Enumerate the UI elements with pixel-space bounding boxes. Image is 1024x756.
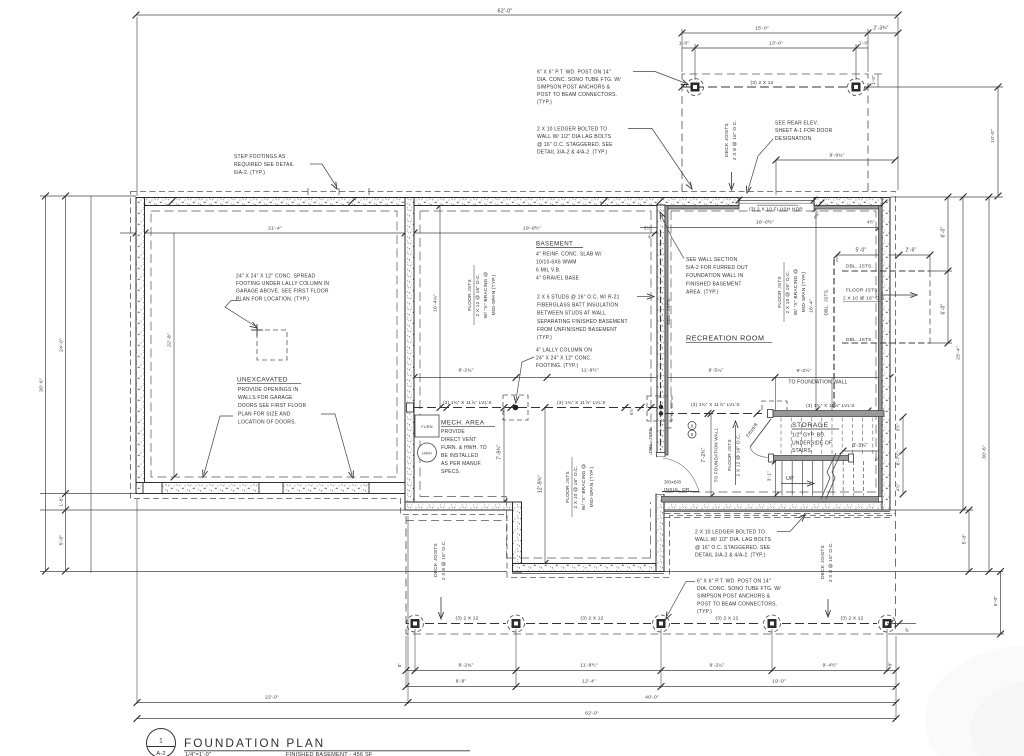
svg-text:DBL. JSTS.: DBL. JSTS. (824, 288, 830, 315)
svg-text:16'-4": 16'-4" (809, 299, 815, 313)
svg-text:6½": 6½" (629, 407, 634, 415)
svg-text:2 X 10 @ 16" O.C.: 2 X 10 @ 16" O.C. (785, 270, 791, 313)
svg-text:25'-4": 25'-4" (956, 346, 962, 360)
svg-text:8'-2¾": 8'-2¾" (458, 368, 473, 374)
svg-text:DETAIL 3/A-2 & 4/A-2. (TYP.): DETAIL 3/A-2 & 4/A-2. (TYP.) (537, 150, 608, 156)
svg-text:7'-9¾": 7'-9¾" (497, 444, 503, 459)
svg-text:12'-9¾": 12'-9¾" (538, 475, 544, 493)
svg-text:8": 8" (397, 663, 402, 668)
svg-text:(3) 2 X 12: (3) 2 X 12 (750, 80, 773, 86)
svg-text:5'-0": 5'-0" (962, 534, 968, 545)
svg-text:6'-0": 6'-0" (941, 304, 947, 315)
svg-text:12'-4": 12'-4" (582, 679, 596, 685)
svg-text:(TYP.): (TYP.) (697, 609, 712, 615)
svg-text:11'-9½": 11'-9½" (581, 367, 599, 374)
svg-text:SEE REAR ELEV.: SEE REAR ELEV. (775, 121, 818, 127)
svg-text:22'-8": 22'-8" (167, 333, 173, 347)
svg-text:2 X 10 @ 16" O.C.: 2 X 10 @ 16" O.C. (573, 465, 579, 508)
svg-text:15'-0": 15'-0" (755, 26, 769, 32)
svg-text:22'-0": 22'-0" (265, 695, 279, 701)
svg-text:DECK JOISTS: DECK JOISTS (433, 543, 439, 577)
svg-text:DESIGNATION.: DESIGNATION. (775, 136, 813, 142)
svg-text:3'-3¾": 3'-3¾" (852, 443, 867, 449)
svg-text:DBL. JSTS.: DBL. JSTS. (648, 426, 654, 453)
svg-text:FOOTING. (TYP.): FOOTING. (TYP.) (536, 363, 578, 369)
svg-text:BASEMENT: BASEMENT (536, 241, 573, 248)
svg-text:HWH: HWH (422, 452, 432, 456)
svg-text:W/ "X" BRACING @: W/ "X" BRACING @ (483, 272, 489, 318)
svg-text:9'-2¼": 9'-2¼" (709, 663, 724, 669)
svg-text:(3) 2 X 12: (3) 2 X 12 (580, 616, 603, 622)
svg-text:STORAGE: STORAGE (792, 422, 829, 429)
svg-text:FLOOR JSTS: FLOOR JSTS (467, 279, 473, 311)
svg-text:TO FOUNDATION WALL: TO FOUNDATION WALL (714, 427, 719, 482)
svg-text:A-2: A-2 (156, 751, 166, 756)
svg-text:4" LALLY COLUMN ON: 4" LALLY COLUMN ON (536, 348, 592, 354)
svg-text:AS PER MANUF.: AS PER MANUF. (441, 461, 482, 467)
svg-text:62'-0": 62'-0" (585, 711, 599, 717)
svg-text:19'-0": 19'-0" (772, 679, 786, 685)
svg-text:DIA. CONC. SONO TUBE FTG. W/: DIA. CONC. SONO TUBE FTG. W/ (697, 586, 781, 592)
svg-text:30'-6": 30'-6" (39, 378, 45, 392)
svg-text:4" REINF. CONC. SLAB W/: 4" REINF. CONC. SLAB W/ (536, 252, 602, 258)
svg-text:5'-0": 5'-0" (59, 535, 65, 546)
svg-text:W/ "X" BRACING @: W/ "X" BRACING @ (581, 464, 587, 510)
svg-text:13'-0": 13'-0" (769, 41, 783, 47)
svg-text:8": 8" (888, 662, 893, 667)
svg-text:9'-9¾": 9'-9¾" (829, 153, 844, 159)
svg-text:5'-0": 5'-0" (993, 596, 999, 607)
svg-text:19'-9½": 19'-9½" (523, 225, 541, 232)
svg-text:PLAN FOR LOCATION. (TYP.): PLAN FOR LOCATION. (TYP.) (236, 296, 309, 302)
svg-text:6'-7½": 6'-7½" (895, 451, 901, 465)
svg-text:2'-6": 2'-6" (906, 248, 917, 254)
svg-text:9'-5¼": 9'-5¼" (708, 368, 723, 374)
svg-text:DIA. CONC. SONO TUBE FTG. W/: DIA. CONC. SONO TUBE FTG. W/ (537, 77, 621, 83)
svg-text:8": 8" (905, 627, 910, 632)
svg-text:9'-2½": 9'-2½" (796, 367, 811, 374)
svg-text:UNEXCAVATED: UNEXCAVATED (237, 377, 288, 384)
svg-text:SHEET A-1 FOR DOOR: SHEET A-1 FOR DOOR (775, 128, 833, 134)
svg-text:UNDERSIDE OF: UNDERSIDE OF (792, 440, 832, 446)
svg-text:1'-0": 1'-0" (871, 75, 876, 85)
svg-text:MID-SPAN (TYP.): MID-SPAN (TYP.) (491, 274, 497, 315)
svg-text:WALLS FOR GARAGE: WALLS FOR GARAGE (238, 395, 293, 401)
svg-text:BETWEEN STUDS AT WALL: BETWEEN STUDS AT WALL (537, 311, 606, 317)
svg-text:@ 16" O.C. STAGGERED. SEE: @ 16" O.C. STAGGERED. SEE (537, 142, 613, 148)
svg-text:PLAN FOR SIZE AND: PLAN FOR SIZE AND (238, 411, 291, 417)
svg-text:3/0x6/8: 3/0x6/8 (664, 480, 681, 486)
svg-text:24" X 24" X 12" CONC.: 24" X 24" X 12" CONC. (536, 355, 592, 361)
svg-text:18'-0½": 18'-0½" (756, 219, 774, 226)
svg-text:DBL. JSTS.: DBL. JSTS. (666, 297, 672, 324)
svg-text:FIBERGLASS BATT INSULATION: FIBERGLASS BATT INSULATION (537, 303, 619, 309)
svg-text:1: 1 (159, 738, 163, 745)
svg-text:FOUNDATION WALL IN: FOUNDATION WALL IN (686, 273, 743, 279)
svg-text:16'-4¾": 16'-4¾" (433, 294, 439, 312)
svg-text:1'-6": 1'-6" (59, 496, 64, 506)
svg-text:FLOOR JSTS: FLOOR JSTS (846, 288, 878, 294)
svg-text:SEPARATING FINISHED BASEMENT: SEPARATING FINISHED BASEMENT (537, 319, 628, 325)
svg-text:PROVIDE: PROVIDE (441, 429, 465, 435)
svg-text:UP: UP (786, 476, 794, 482)
svg-text:(3) 1¾" X 11⅞" LVL'S: (3) 1¾" X 11⅞" LVL'S (806, 403, 855, 408)
svg-text:FURN. & HWH. TO: FURN. & HWH. TO (441, 445, 487, 451)
svg-text:(3) 2 X 12: (3) 2 X 12 (715, 616, 738, 622)
svg-text:TO FOUNDATION WALL: TO FOUNDATION WALL (788, 380, 847, 386)
svg-text:2 X 8 @ 16" O.C.: 2 X 8 @ 16" O.C. (441, 540, 447, 580)
svg-text:FLOOR JSTS: FLOOR JSTS (777, 276, 783, 308)
svg-text:SIMPSON POST ANCHORS &: SIMPSON POST ANCHORS & (697, 594, 771, 600)
svg-text:2 X 8 @ 16" O.C.: 2 X 8 @ 16" O.C. (732, 120, 738, 160)
svg-text:21'-4": 21'-4" (268, 226, 282, 232)
svg-text:4½": 4½" (867, 220, 875, 225)
svg-text:2 X 6 STUDS @ 16" O.C. W/ R-21: 2 X 6 STUDS @ 16" O.C. W/ R-21 (537, 295, 620, 301)
svg-text:40'-0": 40'-0" (645, 695, 659, 701)
svg-text:30'-6": 30'-6" (982, 445, 988, 459)
svg-text:2 X 12 @ 16" O.C.: 2 X 12 @ 16" O.C. (736, 433, 742, 476)
svg-text:2'-3¾": 2'-3¾" (873, 26, 888, 32)
svg-text:6" X 6" P.T. WD. POST ON 14": 6" X 6" P.T. WD. POST ON 14" (537, 70, 611, 76)
svg-text:10/10-6X6 WWM: 10/10-6X6 WWM (536, 260, 577, 266)
svg-text:11'-8½": 11'-8½" (580, 662, 598, 669)
svg-text:3'-1": 3'-1" (767, 471, 772, 481)
svg-text:DBL. JSTS.: DBL. JSTS. (846, 337, 873, 343)
svg-text:@ 16" O.C. STAGGERED. SEE: @ 16" O.C. STAGGERED. SEE (695, 545, 771, 551)
svg-text:BE INSTALLED: BE INSTALLED (441, 453, 479, 459)
svg-text:24'-0": 24'-0" (59, 338, 65, 352)
svg-text:62'-0": 62'-0" (498, 9, 513, 15)
svg-text:6" X 6" P.T. WD. POST ON 14": 6" X 6" P.T. WD. POST ON 14" (697, 579, 771, 585)
svg-text:DIRECT VENT: DIRECT VENT (441, 437, 476, 443)
svg-text:1'-0": 1'-0" (679, 41, 689, 46)
svg-text:RECREATION ROOM: RECREATION ROOM (686, 334, 764, 343)
svg-text:MID-SPAN (TYP.): MID-SPAN (TYP.) (801, 271, 807, 312)
svg-text:DETAIL 3/A-2 & 4/A-2. (TYP.): DETAIL 3/A-2 & 4/A-2. (TYP.) (695, 553, 766, 559)
svg-text:24" X 24" X 12" CONC. SPREAD: 24" X 24" X 12" CONC. SPREAD (236, 274, 315, 280)
svg-text:GARAGE ABOVE. SEE FIRST FLOOR: GARAGE ABOVE. SEE FIRST FLOOR (236, 289, 329, 295)
svg-text:4½": 4½" (896, 483, 901, 491)
svg-text:REQUIRED SEE DETAIL: REQUIRED SEE DETAIL (234, 162, 294, 168)
svg-text:(TYP.): (TYP.) (537, 100, 552, 106)
svg-text:FOUNDATION PLAN: FOUNDATION PLAN (184, 736, 325, 750)
svg-text:AREA. (TYP.): AREA. (TYP.) (686, 289, 719, 295)
svg-text:FROM UNFINISHED BASEMENT: FROM UNFINISHED BASEMENT (537, 327, 617, 333)
svg-text:9'-4½": 9'-4½" (822, 662, 837, 669)
svg-text:PROVIDE OPENINGS IN: PROVIDE OPENINGS IN (238, 387, 299, 393)
svg-text:FURN: FURN (421, 425, 432, 429)
svg-text:2 X 10 LEDGER BOLTED TO: 2 X 10 LEDGER BOLTED TO (537, 127, 607, 133)
svg-text:DECK JOISTS: DECK JOISTS (820, 545, 826, 579)
svg-text:5'-0": 5'-0" (856, 248, 867, 254)
svg-text:(3) 1¾" X 11⅞" LVL'S: (3) 1¾" X 11⅞" LVL'S (443, 400, 492, 405)
svg-text:8'-2¾": 8'-2¾" (458, 663, 473, 669)
svg-text:5/A-2 FOR FURRED OUT: 5/A-2 FOR FURRED OUT (686, 265, 748, 271)
svg-text:FLOOR JSTS: FLOOR JSTS (727, 439, 733, 471)
svg-text:6/A-2. (TYP.): 6/A-2. (TYP.) (234, 170, 265, 176)
svg-text:STAIRS: STAIRS (792, 448, 811, 454)
svg-text:POST TO BEAM CONNECTORS.: POST TO BEAM CONNECTORS. (697, 601, 777, 607)
svg-text:2 X 8 @ 16" O.C.: 2 X 8 @ 16" O.C. (828, 542, 834, 582)
svg-text:MID-SPAN (TYP.): MID-SPAN (TYP.) (589, 466, 595, 507)
svg-text:(3) 2 X 12: (3) 2 X 12 (840, 616, 863, 622)
svg-text:(3) 1¾" X 11⅞" LVL'S: (3) 1¾" X 11⅞" LVL'S (691, 402, 740, 407)
svg-text:DOORS SEE FIRST FLOOR: DOORS SEE FIRST FLOOR (238, 403, 306, 409)
svg-text:(3) 2 X 10 FLUSH HDR: (3) 2 X 10 FLUSH HDR (749, 207, 803, 213)
svg-text:(TYP.): (TYP.) (537, 335, 552, 341)
svg-text:SEE WALL SECTION: SEE WALL SECTION (686, 257, 738, 263)
svg-text:1/4"=1'-0": 1/4"=1'-0" (185, 752, 211, 756)
svg-text:MECH. AREA: MECH. AREA (441, 420, 485, 427)
svg-text:FLOOR JSTS: FLOOR JSTS (565, 471, 571, 503)
svg-text:DBL. JSTS.: DBL. JSTS. (846, 264, 873, 270)
svg-text:6 MIL V.B.: 6 MIL V.B. (536, 268, 561, 274)
svg-text:FINISHED BASEMENT: FINISHED BASEMENT (686, 281, 742, 287)
svg-text:(3) 2 X 12: (3) 2 X 12 (455, 616, 478, 622)
svg-text:2 X 10 @ 16" O.C.: 2 X 10 @ 16" O.C. (843, 296, 886, 302)
svg-text:7'-2¾": 7'-2¾" (701, 447, 707, 462)
svg-text:FOOTING UNDER LALLY COLUMN IN: FOOTING UNDER LALLY COLUMN IN (236, 281, 329, 287)
svg-text:8'-8": 8'-8" (456, 679, 467, 685)
svg-text:SPECS.: SPECS. (441, 469, 461, 475)
svg-text:LOCATION OF DOORS.: LOCATION OF DOORS. (238, 419, 296, 425)
svg-text:DECK JOISTS: DECK JOISTS (724, 123, 730, 157)
svg-text:5½": 5½" (896, 423, 901, 431)
svg-text:(3) 1¾" X 11⅞" LVL'S: (3) 1¾" X 11⅞" LVL'S (557, 400, 606, 405)
svg-text:2 X 12 @ 16" O.C.: 2 X 12 @ 16" O.C. (475, 273, 481, 316)
svg-text:WALL W/ 1/2" DIA LAG BOLTS: WALL W/ 1/2" DIA LAG BOLTS (537, 134, 612, 140)
svg-text:W/ "X" BRACING @: W/ "X" BRACING @ (793, 269, 799, 315)
svg-text:INSUL. DR.: INSUL. DR. (664, 487, 691, 493)
svg-text:POST TO BEAM CONNECTORS.: POST TO BEAM CONNECTORS. (537, 92, 617, 98)
svg-text:STEP FOOTINGS AS: STEP FOOTINGS AS (234, 154, 286, 160)
svg-text:2 X 10 LEDGER BOLTED TO: 2 X 10 LEDGER BOLTED TO (695, 530, 765, 536)
svg-text:4" GRAVEL BASE: 4" GRAVEL BASE (536, 276, 580, 282)
svg-text:FINISHED BASEMENT - 456 SF: FINISHED BASEMENT - 456 SF (286, 752, 373, 756)
svg-text:10'-0": 10'-0" (990, 129, 996, 143)
svg-text:1/2" GYP. BD.: 1/2" GYP. BD. (792, 433, 826, 439)
svg-text:6'-0": 6'-0" (941, 227, 947, 238)
svg-text:WALL W/ 1/2" DIA. LAG BOLTS: WALL W/ 1/2" DIA. LAG BOLTS (695, 537, 772, 543)
svg-text:SIMPSON POST ANCHORS &: SIMPSON POST ANCHORS & (537, 85, 611, 91)
